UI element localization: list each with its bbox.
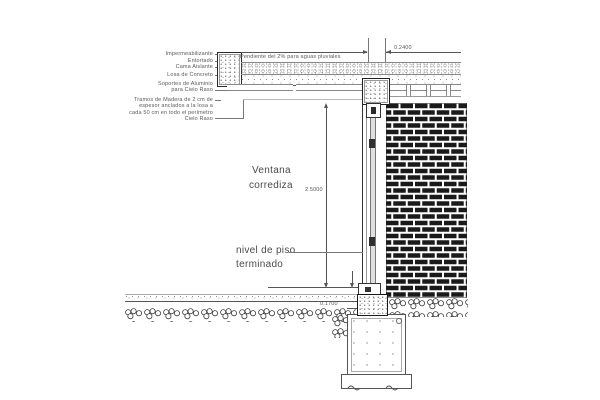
layer-label-soportes-line1: Soportes de Aluminio: [60, 81, 213, 87]
ventana-label-line2: corrediza: [249, 180, 293, 191]
leader-tramos: [215, 100, 221, 101]
brick-wall-hatch: [386, 103, 467, 298]
nivel-label-line2: terminado: [236, 259, 283, 270]
dim-arrow-right-top: [363, 50, 368, 54]
layer-label-entortado: Entortado: [60, 58, 213, 64]
layer-label-losa-concreto: Losa de Concreto: [60, 72, 213, 78]
layer-label-cama-aislante: Cama Aislante: [60, 64, 213, 70]
ceiling-channel-left-a: [227, 84, 293, 91]
window-frame-line-outer: [362, 103, 363, 295]
pendiente-note: Pendiente del 2% para aguas pluviales: [240, 54, 341, 60]
dim-sill-offset: 0.1700: [320, 301, 338, 307]
floor-reference-line: [268, 287, 363, 288]
window-sill-profile-core: [365, 287, 371, 293]
nivel-label-line1: nivel de piso: [236, 245, 296, 256]
dim-window-height-line: [326, 105, 327, 286]
floor-gravel-row: [124, 307, 356, 322]
cielo-raso-line-left: [243, 99, 362, 100]
roof-top-line-left: [241, 52, 367, 53]
leader-cielo-raso: [215, 118, 244, 119]
layer-label-tramos-line2: espesor anclados a la losa a: [60, 103, 213, 109]
rebar-mark: [396, 318, 402, 324]
layer-label-soportes-line2: para Cielo Raso: [60, 87, 213, 93]
window-head-profile: [366, 103, 381, 118]
window-head-profile-core: [371, 107, 376, 115]
slab-edge-beam-fill: [219, 54, 240, 85]
slab-edge-beam: [217, 52, 242, 87]
foundation-pedestal-fill: [351, 318, 402, 372]
window-lintel-fill: [364, 80, 388, 103]
dim-ext-line-1: [368, 38, 369, 62]
window-frame-line-inner: [366, 103, 367, 295]
concrete-sill-block: [357, 294, 388, 316]
dim-arrow-down-2: [350, 283, 354, 288]
dim-parapet-width: 0.2400: [394, 45, 412, 51]
dim-window-height: 2.5000: [305, 187, 323, 193]
window-meeting-rail-lower: [369, 237, 375, 246]
foundation-pedestal: [347, 314, 406, 376]
leader-cielo-raso-vertical: [243, 99, 244, 119]
ventana-label-line1: Ventana: [252, 165, 291, 176]
footing-break-lines: [346, 385, 406, 393]
cielo-raso-line-right: [388, 96, 461, 97]
window-meeting-rail-upper: [369, 139, 375, 148]
ceiling-channel-left-b: [296, 84, 362, 91]
architectural-section-drawing: Impermeabilizante Entortado Cama Aislant…: [0, 0, 600, 400]
dim-arrow-left-top: [386, 50, 391, 54]
roof-top-line-right: [386, 52, 461, 53]
dim-arrow-up: [324, 103, 328, 108]
layer-label-tramos-line1: Tramos de Madera de 2 cm de: [60, 97, 213, 103]
layer-label-impermeabilizante: Impermeabilizante: [60, 51, 213, 57]
layer-label-cielo-raso: Cielo Raso: [60, 116, 213, 122]
window-lintel: [362, 78, 390, 105]
nivel-leader: [289, 252, 363, 253]
concrete-sill-block-fill: [359, 296, 387, 315]
